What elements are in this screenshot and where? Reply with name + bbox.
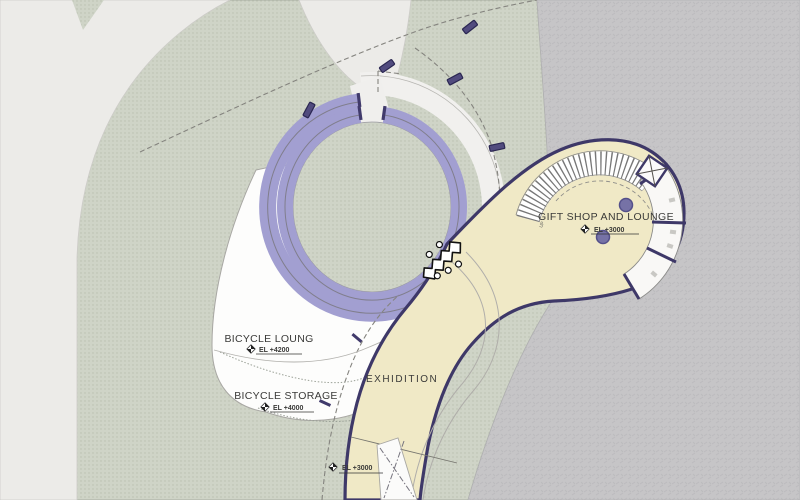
bicycle-lounge-elevation: EL +4200 (259, 347, 290, 354)
exhibition-label: EXHIDITION (366, 374, 438, 385)
column-round (620, 199, 633, 212)
bicycle-storage-elevation: EL +4000 (273, 405, 304, 412)
bicycle-lounge-label: BICYCLE LOUNG (224, 333, 313, 345)
track-infield (293, 122, 451, 292)
gift-shop-elevation: EL +3000 (594, 227, 625, 234)
floor-plan-canvas: BICYCLE LOUNG EL +4200 BICYCLE STORAGE E… (0, 0, 800, 500)
bicycle-storage-label: BICYCLE STORAGE (234, 390, 338, 402)
gift-shop-label: GIFT SHOP AND LOUNGE (538, 211, 674, 223)
exhibition-elevation: EL +3000 (342, 465, 373, 472)
site-plan-drawing: BICYCLE LOUNG EL +4200 BICYCLE STORAGE E… (0, 0, 800, 500)
